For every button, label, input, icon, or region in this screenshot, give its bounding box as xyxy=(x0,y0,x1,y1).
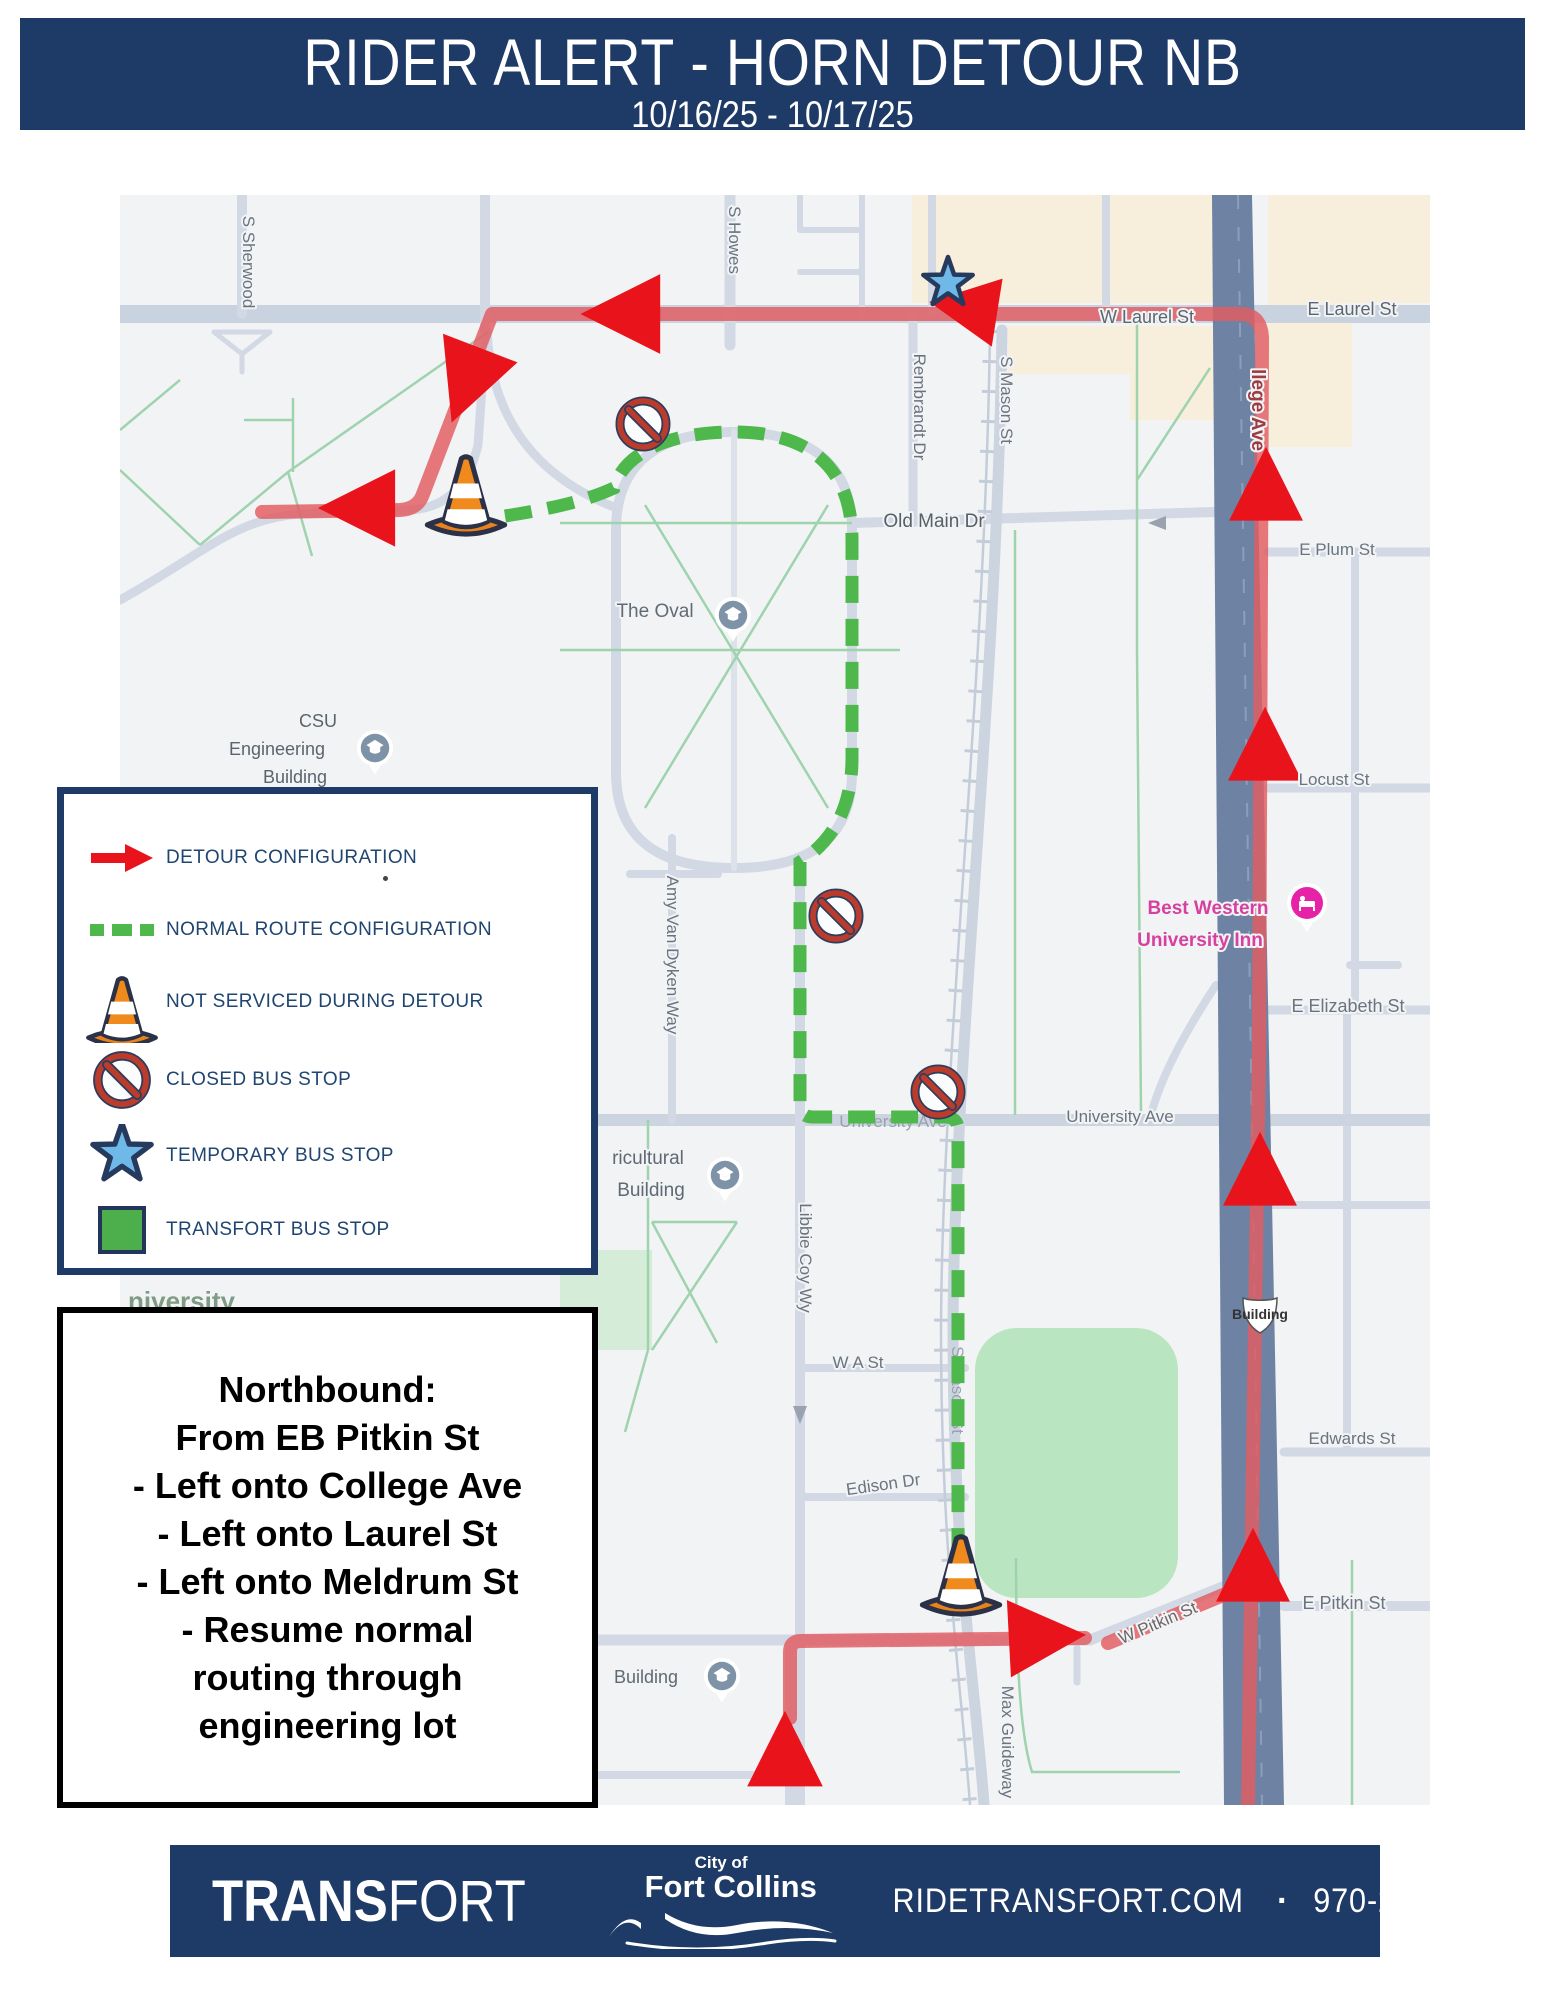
header-banner: RIDER ALERT - HORN DETOUR NB 10/16/25 - … xyxy=(20,18,1525,130)
transfort-logo-light: FORT xyxy=(388,1869,526,1934)
street-label-libbie-coy: Libbie Coy Wy xyxy=(796,1203,815,1313)
legend-label: TRANSFORT BUS STOP xyxy=(166,1219,390,1241)
footer-website: RIDETRANSFORT.COM xyxy=(892,1882,1243,1921)
legend-row-transfort-stop: TRANSFORT BUS STOP xyxy=(78,1199,390,1261)
street-label-max-guideway: Max Guideway xyxy=(998,1686,1017,1799)
poi-label-the-oval: The Oval xyxy=(616,601,693,622)
street-label-old-main: Old Main Dr xyxy=(883,511,985,532)
legend-row-normal-route: NORMAL ROUTE CONFIGURATION xyxy=(78,899,492,961)
street-label-w-laurel: W Laurel St xyxy=(1100,307,1194,327)
legend-row-detour: DETOUR CONFIGURATION xyxy=(78,827,417,889)
legend-row-temporary-stop: TEMPORARY BUS STOP xyxy=(78,1125,394,1187)
street-label-edwards: Edwards St xyxy=(1309,1429,1396,1448)
directions-line: From EB Pitkin St xyxy=(63,1414,592,1462)
closed-stop-icon-university xyxy=(915,1069,961,1115)
poi-label-best-western: Best Western xyxy=(1147,898,1268,919)
footer-contact: RIDETRANSFORT.COM · 970-221-6620 xyxy=(873,1882,1526,1921)
poi-label-csu: CSU xyxy=(299,711,337,731)
temporary-stop-star-icon xyxy=(78,1124,166,1188)
closed-stop-icon-libbie xyxy=(813,893,859,939)
stray-period xyxy=(383,876,388,881)
directions-line: - Left onto College Ave xyxy=(63,1462,592,1510)
directions-line: - Resume normal xyxy=(63,1606,592,1654)
directions-box: Northbound: From EB Pitkin St - Left ont… xyxy=(57,1307,598,1808)
legend-label: TEMPORARY BUS STOP xyxy=(166,1145,394,1167)
legend-row-closed-stop: CLOSED BUS STOP xyxy=(78,1049,351,1111)
footer-separator: · xyxy=(1277,1882,1288,1921)
street-label-plum: E Plum St xyxy=(1299,540,1375,559)
legend-label: NOT SERVICED DURING DETOUR xyxy=(166,991,484,1013)
directions-line: - Left onto Meldrum St xyxy=(63,1558,592,1606)
street-label-w-a-st: W A St xyxy=(832,1353,883,1372)
page-title: RIDER ALERT - HORN DETOUR NB xyxy=(303,24,1241,100)
legend-label: DETOUR CONFIGURATION xyxy=(166,847,417,869)
transfort-logo: TRANSFORT xyxy=(212,1868,526,1935)
street-label-sherwood: S Sherwood xyxy=(239,216,258,309)
detour-dates: 10/16/25 - 10/17/25 xyxy=(631,94,913,136)
street-label-287: Building xyxy=(1232,1306,1288,1322)
poi-label-university-inn: University Inn xyxy=(1137,930,1263,951)
fort-collins-logo: City of Fort Collins xyxy=(607,1851,837,1951)
street-label-university-ave: University Ave xyxy=(1066,1107,1173,1126)
legend-row-not-serviced: NOT SERVICED DURING DETOUR xyxy=(78,971,484,1033)
street-label-amy-van-dyken: Amy Van Dyken Way xyxy=(663,876,682,1035)
legend-label: NORMAL ROUTE CONFIGURATION xyxy=(166,919,492,941)
fort-collins-logo-name: Fort Collins xyxy=(645,1869,817,1905)
directions-line: routing through xyxy=(63,1654,592,1702)
footer-phone: 970-221-6620 xyxy=(1314,1882,1515,1921)
street-label-e-laurel: E Laurel St xyxy=(1307,299,1396,319)
legend: DETOUR CONFIGURATION NORMAL ROUTE CONFIG… xyxy=(57,787,598,1275)
bus-stop-square-icon xyxy=(78,1205,166,1255)
street-label-rembrandt: Rembrandt Dr xyxy=(910,354,929,461)
street-label-college-ave: llege Ave xyxy=(1247,369,1268,451)
street-label-mason: S Mason St xyxy=(997,356,1016,444)
sports-field xyxy=(975,1328,1178,1598)
directions-line: - Left onto Laurel St xyxy=(63,1510,592,1558)
poi-label-agricultural-building: Building xyxy=(617,1180,685,1201)
closed-stop-icon xyxy=(78,1048,166,1112)
dashed-route-icon xyxy=(78,922,166,938)
closed-stop-icon-oval xyxy=(620,401,666,447)
detour-arrow-icon xyxy=(78,840,166,876)
footer-banner: TRANSFORT City of Fort Collins RIDETRANS… xyxy=(170,1845,1380,1957)
transfort-logo-bold: TRANS xyxy=(212,1869,388,1934)
poi-label-building-south: Building xyxy=(614,1667,678,1687)
poi-label-engineering: Engineering xyxy=(229,739,325,759)
poi-label-agricultural: ricultural xyxy=(612,1148,684,1169)
street-label-elizabeth: E Elizabeth St xyxy=(1291,996,1404,1016)
directions-line: Northbound: xyxy=(63,1366,592,1414)
fort-collins-swoosh-icon xyxy=(607,1903,837,1949)
street-label-howes: S Howes xyxy=(725,206,744,274)
street-label-e-pitkin: E Pitkin St xyxy=(1302,1593,1385,1613)
poi-label-engineering-building: Building xyxy=(263,767,327,787)
legend-label: CLOSED BUS STOP xyxy=(166,1069,351,1091)
street-label-locust: Locust St xyxy=(1299,770,1370,789)
cone-icon xyxy=(78,961,166,1043)
directions-line: engineering lot xyxy=(63,1702,592,1750)
